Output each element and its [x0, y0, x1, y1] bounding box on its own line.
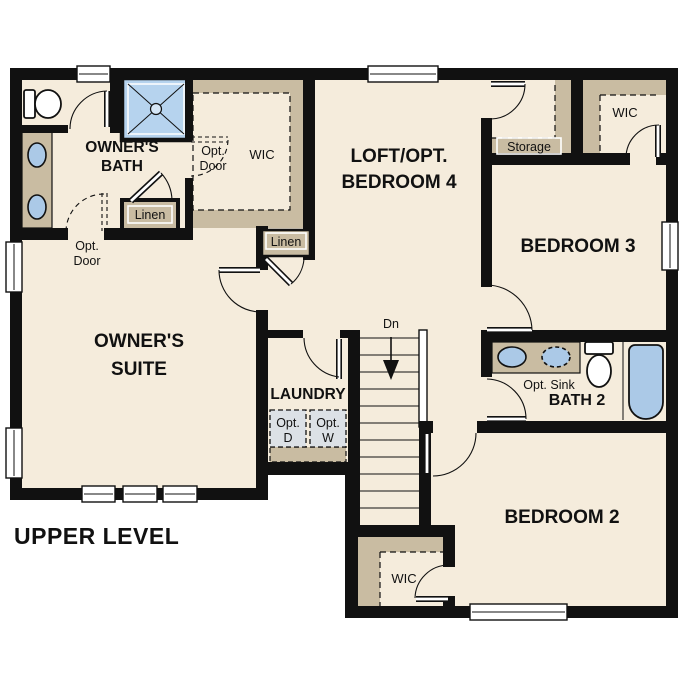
window — [82, 486, 115, 502]
stair-railing — [419, 330, 427, 427]
wic-bedroom3-shelf-top — [583, 80, 666, 95]
owners-bath-sink-1 — [28, 143, 46, 167]
window — [163, 486, 197, 502]
wic-bedroom3-label: WIC — [612, 105, 637, 120]
window — [77, 66, 110, 82]
shower — [122, 78, 190, 140]
bath2-sink — [498, 347, 526, 367]
wic-owners-shelf-bottom — [185, 210, 303, 228]
owners-bath-label-2: BATH — [101, 158, 143, 175]
bedroom2-label: BEDROOM 2 — [504, 507, 619, 528]
shower-drain — [151, 104, 162, 115]
linen-hall-label: Linen — [271, 235, 302, 249]
owners-bath-sink-2 — [28, 195, 46, 219]
loft-label-1: LOFT/OPT. — [350, 146, 447, 167]
wic-bedroom2-label: WIC — [391, 571, 416, 586]
bedroom3-label: BEDROOM 3 — [520, 236, 635, 257]
opt-door-suite-label-2: Door — [73, 254, 100, 268]
window — [662, 222, 678, 270]
window — [368, 66, 438, 82]
wic-bedroom3-shelf-left — [583, 95, 600, 153]
opt-dryer-label-2: D — [283, 431, 292, 445]
owners-suite-label-2: SUITE — [111, 359, 167, 380]
bath2-toilet — [585, 342, 613, 387]
storage-label: Storage — [507, 140, 551, 154]
wic-owners-label: WIC — [249, 147, 274, 162]
owners-bath-label-1: OWNER'S — [85, 139, 158, 156]
wic-owners-shelf-top — [185, 80, 303, 93]
loft-label-2: BEDROOM 4 — [341, 172, 457, 193]
laundry-counter — [270, 447, 346, 462]
window — [6, 428, 22, 478]
bathtub — [629, 345, 663, 419]
opt-door-wic-label-1: Opt. — [201, 144, 225, 158]
wic-owners-shelf-right — [290, 93, 303, 228]
window — [123, 486, 157, 502]
owners-bath-toilet — [24, 90, 61, 118]
laundry-label: LAUNDRY — [270, 386, 346, 403]
opt-door-suite-label-1: Opt. — [75, 239, 99, 253]
wic-bedroom2-shelf-left — [357, 537, 380, 606]
window — [470, 604, 567, 620]
bath2-optional-sink — [542, 347, 570, 367]
opt-washer-label-1: Opt. — [316, 416, 340, 430]
opt-sink-label: Opt. Sink — [523, 378, 575, 392]
floor-plan-page: OWNER'S BATH OWNER'S SUITE LOFT/OPT. BED… — [0, 0, 687, 687]
opt-dryer-label-1: Opt. — [276, 416, 300, 430]
page-title: UPPER LEVEL — [14, 523, 179, 549]
linen-bath-label: Linen — [135, 208, 166, 222]
window — [6, 242, 22, 292]
opt-door-wic-label-2: Door — [199, 159, 226, 173]
opt-washer-label-2: W — [322, 431, 334, 445]
owners-suite-label-1: OWNER'S — [94, 331, 184, 352]
stairs-down-label: Dn — [383, 317, 399, 331]
bath2-label: BATH 2 — [549, 392, 606, 409]
floor-plan: OWNER'S BATH OWNER'S SUITE LOFT/OPT. BED… — [0, 0, 687, 687]
